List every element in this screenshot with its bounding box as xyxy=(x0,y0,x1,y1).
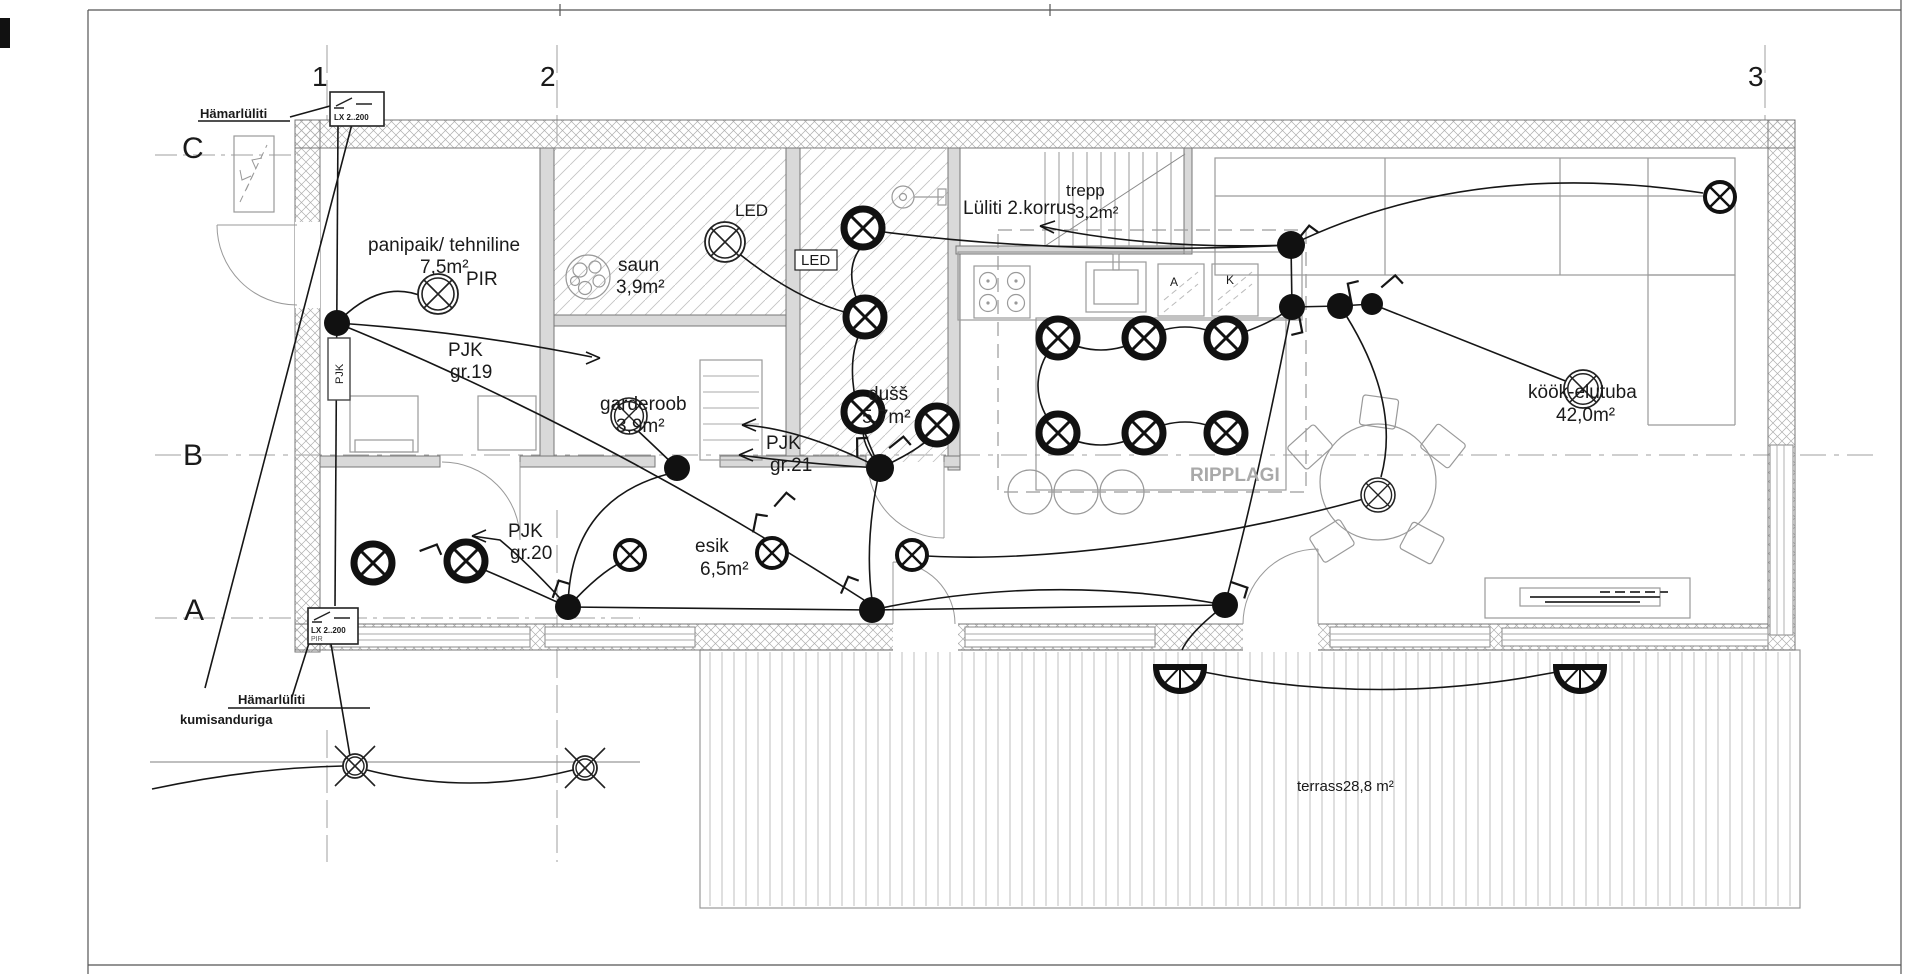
floor-plan-drawing: 1 2 3 C B A terrass28,8 m² xyxy=(0,0,1920,974)
room-panipaik-name: panipaik/ tehniline xyxy=(368,235,520,256)
grid-row-a: A xyxy=(184,594,204,627)
ceiling-light-icon xyxy=(897,540,927,570)
window xyxy=(1770,445,1793,635)
ceiling-light-icon xyxy=(918,406,956,444)
room-garderoob-area: 3,9m² xyxy=(616,416,665,437)
led-boxed-label: LED xyxy=(795,250,837,270)
pjk21-label-1: PJK xyxy=(766,433,801,454)
window xyxy=(330,627,1768,647)
pir-label: PIR xyxy=(466,269,498,290)
entry-door xyxy=(217,222,320,308)
appliance-k: K xyxy=(1212,264,1258,316)
sofa xyxy=(1215,158,1735,425)
wall-light-icon xyxy=(1156,667,1204,691)
lx-bottom-pir-label: PIR xyxy=(311,636,323,643)
led-label: LED xyxy=(735,201,768,220)
room-esik-name: esik xyxy=(695,536,729,557)
led-light-icon xyxy=(705,222,745,262)
pjk-box-label: PJK xyxy=(334,363,346,384)
pjk-distribution-box: PJK xyxy=(328,338,350,400)
pjk19-label-2: gr.19 xyxy=(450,362,492,383)
grid-col-3: 3 xyxy=(1748,61,1764,92)
room-dushsh-area: 5,7m² xyxy=(862,407,911,428)
ripplagi-label: RIPPLAGI xyxy=(1190,465,1280,486)
grid-row-c: C xyxy=(182,132,204,165)
pjk20-label-1: PJK xyxy=(508,521,543,542)
pjk20-label-2: gr.20 xyxy=(510,543,552,564)
ceiling-light-icon xyxy=(1039,414,1077,452)
ceiling-light-icon xyxy=(1125,319,1163,357)
grid-col-2: 2 xyxy=(540,61,556,92)
appliance xyxy=(478,396,536,450)
ceiling-light-icon xyxy=(1039,319,1077,357)
room-panipaik-area: 7,5m² xyxy=(420,257,469,278)
dusk-switch-box-bottom: LX 2..200 PIR xyxy=(308,608,358,644)
appliance-a-label: A xyxy=(1170,275,1178,289)
room-kook-name: köök-elutuba xyxy=(1528,382,1637,403)
terrace: terrass28,8 m² xyxy=(700,650,1800,908)
ceiling-light-icon xyxy=(354,544,392,582)
grid-row-b: B xyxy=(183,439,203,472)
room-saun-area: 3,9m² xyxy=(616,277,665,298)
lx-bottom-label: LX 2..200 xyxy=(311,626,346,635)
ceiling-light-icon xyxy=(757,538,787,568)
bollard-light-icon xyxy=(565,748,605,788)
cooktop xyxy=(974,266,1030,318)
lx-top-label: LX 2..200 xyxy=(334,113,369,122)
appliance xyxy=(350,396,418,452)
ceiling-light-icon xyxy=(1207,414,1245,452)
ceiling-light-icon xyxy=(844,209,882,247)
appliance-a: A xyxy=(1158,264,1204,316)
room-garderoob-name: garderoob xyxy=(600,394,687,415)
ceiling-light-icon xyxy=(1125,414,1163,452)
sink xyxy=(1086,254,1146,312)
room-kook-area: 42,0m² xyxy=(1556,405,1615,426)
lyliti-2korrus-label: Lüliti 2.korrus xyxy=(963,198,1076,219)
pjk21-label-2: gr.21 xyxy=(770,455,812,476)
sideboard xyxy=(1485,578,1690,618)
wall-light-icon xyxy=(1556,667,1604,691)
room-esik-area: 6,5m² xyxy=(700,559,749,580)
room-dushsh-name: dušš xyxy=(868,384,908,405)
grid-col-1: 1 xyxy=(312,61,328,92)
terrace-label: terrass28,8 m² xyxy=(1297,778,1394,795)
ceiling-light-icon xyxy=(846,298,884,336)
ceiling-light-icon xyxy=(1361,478,1395,512)
ceiling-light-icon xyxy=(1207,319,1245,357)
room-saun-name: saun xyxy=(618,255,659,276)
ceiling-light-icon xyxy=(615,540,645,570)
wardrobe-shelves xyxy=(700,360,762,460)
dusk-switch-label-bottom: Hämarlüliti xyxy=(238,692,305,707)
pir-light-icon xyxy=(418,274,458,314)
svg-text:LED: LED xyxy=(801,252,830,269)
dusk-switch-label-top: Hämarlüliti xyxy=(200,106,267,121)
room-trepp-area: 3,2m² xyxy=(1075,203,1119,222)
ceiling-light-icon xyxy=(447,542,485,580)
dusk-switch-box-top: LX 2..200 xyxy=(330,92,384,126)
electrical-cabinet xyxy=(234,136,274,212)
ceiling-light-icon xyxy=(1705,182,1735,212)
pjk19-label-1: PJK xyxy=(448,340,483,361)
dusk-switch-label-bottom-2: kumisanduriga xyxy=(180,712,273,727)
